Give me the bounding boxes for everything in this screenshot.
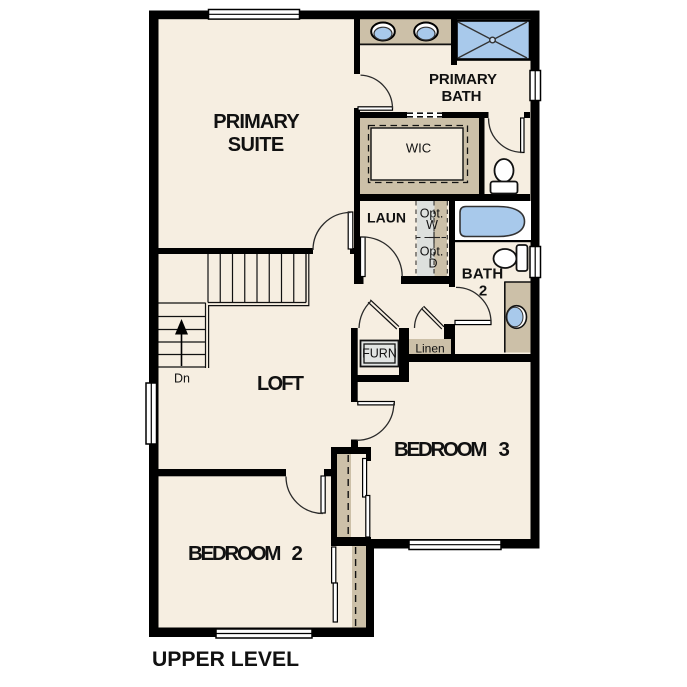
svg-text:Dn: Dn — [174, 372, 190, 386]
svg-text:2: 2 — [479, 283, 487, 300]
svg-text:BEDROOM: BEDROOM — [188, 542, 282, 565]
svg-text:PRIMARY: PRIMARY — [429, 71, 497, 88]
svg-text:LOFT: LOFT — [257, 373, 304, 395]
svg-text:SUITE: SUITE — [228, 134, 285, 156]
svg-text:WIC: WIC — [406, 141, 431, 156]
svg-text:UPPER LEVEL: UPPER LEVEL — [152, 647, 299, 671]
svg-text:FURN: FURN — [362, 347, 397, 361]
svg-text:BATH: BATH — [462, 266, 504, 283]
svg-text:PRIMARY: PRIMARY — [213, 111, 300, 133]
svg-text:3: 3 — [499, 438, 510, 461]
svg-text:D: D — [428, 257, 437, 271]
svg-text:LAUN: LAUN — [367, 210, 406, 226]
svg-text:2: 2 — [292, 542, 303, 565]
svg-text:BATH: BATH — [442, 88, 482, 105]
svg-text:Linen: Linen — [415, 342, 444, 356]
svg-text:BEDROOM: BEDROOM — [394, 438, 488, 461]
svg-text:W: W — [426, 218, 438, 232]
